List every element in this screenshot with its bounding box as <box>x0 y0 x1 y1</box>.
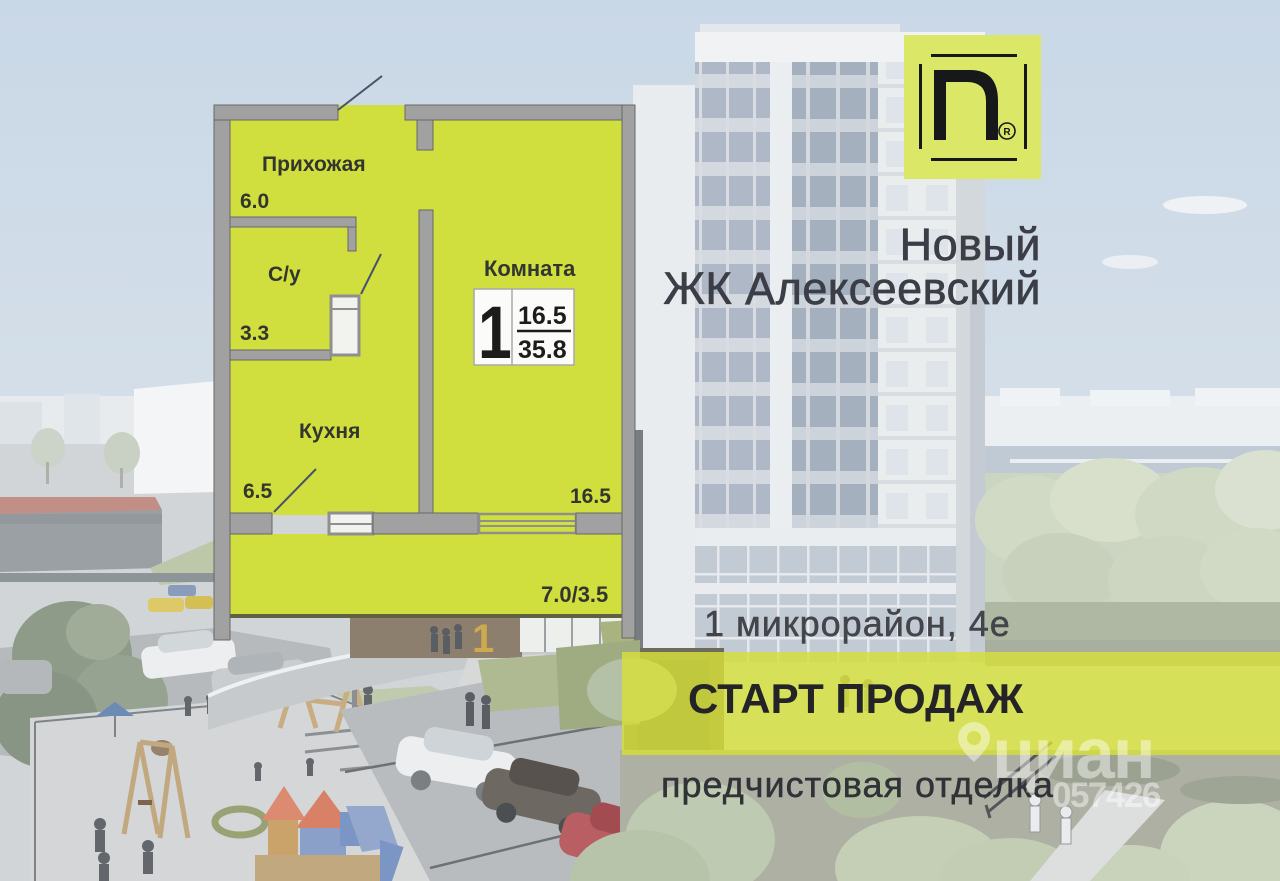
svg-text:7.0/3.5: 7.0/3.5 <box>541 582 608 607</box>
svg-text:Кухня: Кухня <box>299 420 360 443</box>
svg-text:Прихожая: Прихожая <box>262 153 366 176</box>
svg-text:6.5: 6.5 <box>243 480 273 503</box>
svg-text:057426: 057426 <box>1052 776 1161 815</box>
svg-text:3.3: 3.3 <box>240 322 269 345</box>
svg-text:16.5: 16.5 <box>570 485 611 508</box>
svg-text:R: R <box>1003 127 1011 138</box>
svg-text:6.0: 6.0 <box>240 190 269 213</box>
svg-text:С/у: С/у <box>268 263 301 286</box>
svg-text:35.8: 35.8 <box>518 336 567 364</box>
